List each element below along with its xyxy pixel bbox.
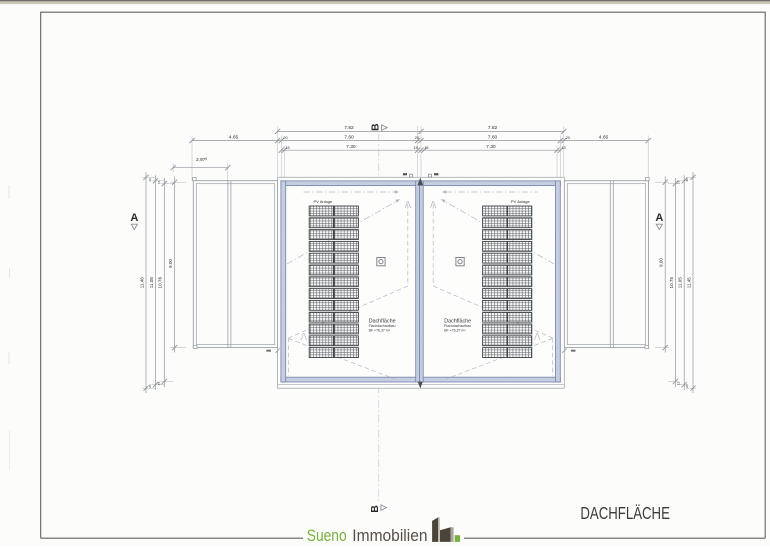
svg-text:20: 20 xyxy=(566,136,570,140)
svg-text:Sueno: Sueno xyxy=(307,526,347,545)
svg-text:15: 15 xyxy=(285,146,289,150)
svg-text:20: 20 xyxy=(685,178,689,182)
svg-text:15: 15 xyxy=(676,381,680,385)
svg-text:7.60: 7.60 xyxy=(488,135,498,141)
svg-text:15: 15 xyxy=(157,381,161,385)
svg-text:15: 15 xyxy=(561,146,565,150)
svg-text:15: 15 xyxy=(413,146,417,150)
svg-text:11.05: 11.05 xyxy=(678,277,683,289)
svg-text:15: 15 xyxy=(424,146,428,150)
svg-text:BF +76,37 m²: BF +76,37 m² xyxy=(369,328,391,332)
svg-text:20: 20 xyxy=(148,178,152,182)
svg-text:Immobilien: Immobilien xyxy=(352,526,427,545)
svg-text:PV Anlage: PV Anlage xyxy=(314,199,333,204)
svg-text:4.65: 4.65 xyxy=(599,135,609,141)
svg-text:9.00: 9.00 xyxy=(168,259,173,268)
svg-text:20: 20 xyxy=(415,136,419,140)
svg-text:DACHFLÄCHE: DACHFLÄCHE xyxy=(580,503,670,523)
svg-text:PV Anlage: PV Anlage xyxy=(511,199,530,204)
svg-text:10.75: 10.75 xyxy=(669,277,674,289)
svg-text:11.45: 11.45 xyxy=(686,277,691,289)
svg-text:7.30: 7.30 xyxy=(486,144,496,150)
svg-text:A: A xyxy=(130,212,138,224)
svg-text:B: B xyxy=(369,505,381,513)
svg-text:20: 20 xyxy=(283,136,287,140)
svg-text:A: A xyxy=(655,212,663,224)
svg-text:7.82: 7.82 xyxy=(344,125,354,131)
svg-text:10.76: 10.76 xyxy=(158,277,163,289)
svg-text:15: 15 xyxy=(157,180,161,184)
svg-text:20: 20 xyxy=(685,384,689,388)
svg-text:7.60: 7.60 xyxy=(344,135,354,141)
svg-text:4.65: 4.65 xyxy=(229,135,239,141)
svg-text:B: B xyxy=(369,123,381,131)
svg-text:11.48: 11.48 xyxy=(139,277,144,289)
svg-text:BF +76,37 m²: BF +76,37 m² xyxy=(444,328,466,332)
svg-text:9.00: 9.00 xyxy=(659,258,664,267)
svg-text:15: 15 xyxy=(676,180,680,184)
svg-text:11.08: 11.08 xyxy=(149,277,154,289)
svg-text:7.82: 7.82 xyxy=(488,125,498,131)
svg-text:7.30: 7.30 xyxy=(346,144,356,150)
svg-text:20: 20 xyxy=(148,384,152,388)
